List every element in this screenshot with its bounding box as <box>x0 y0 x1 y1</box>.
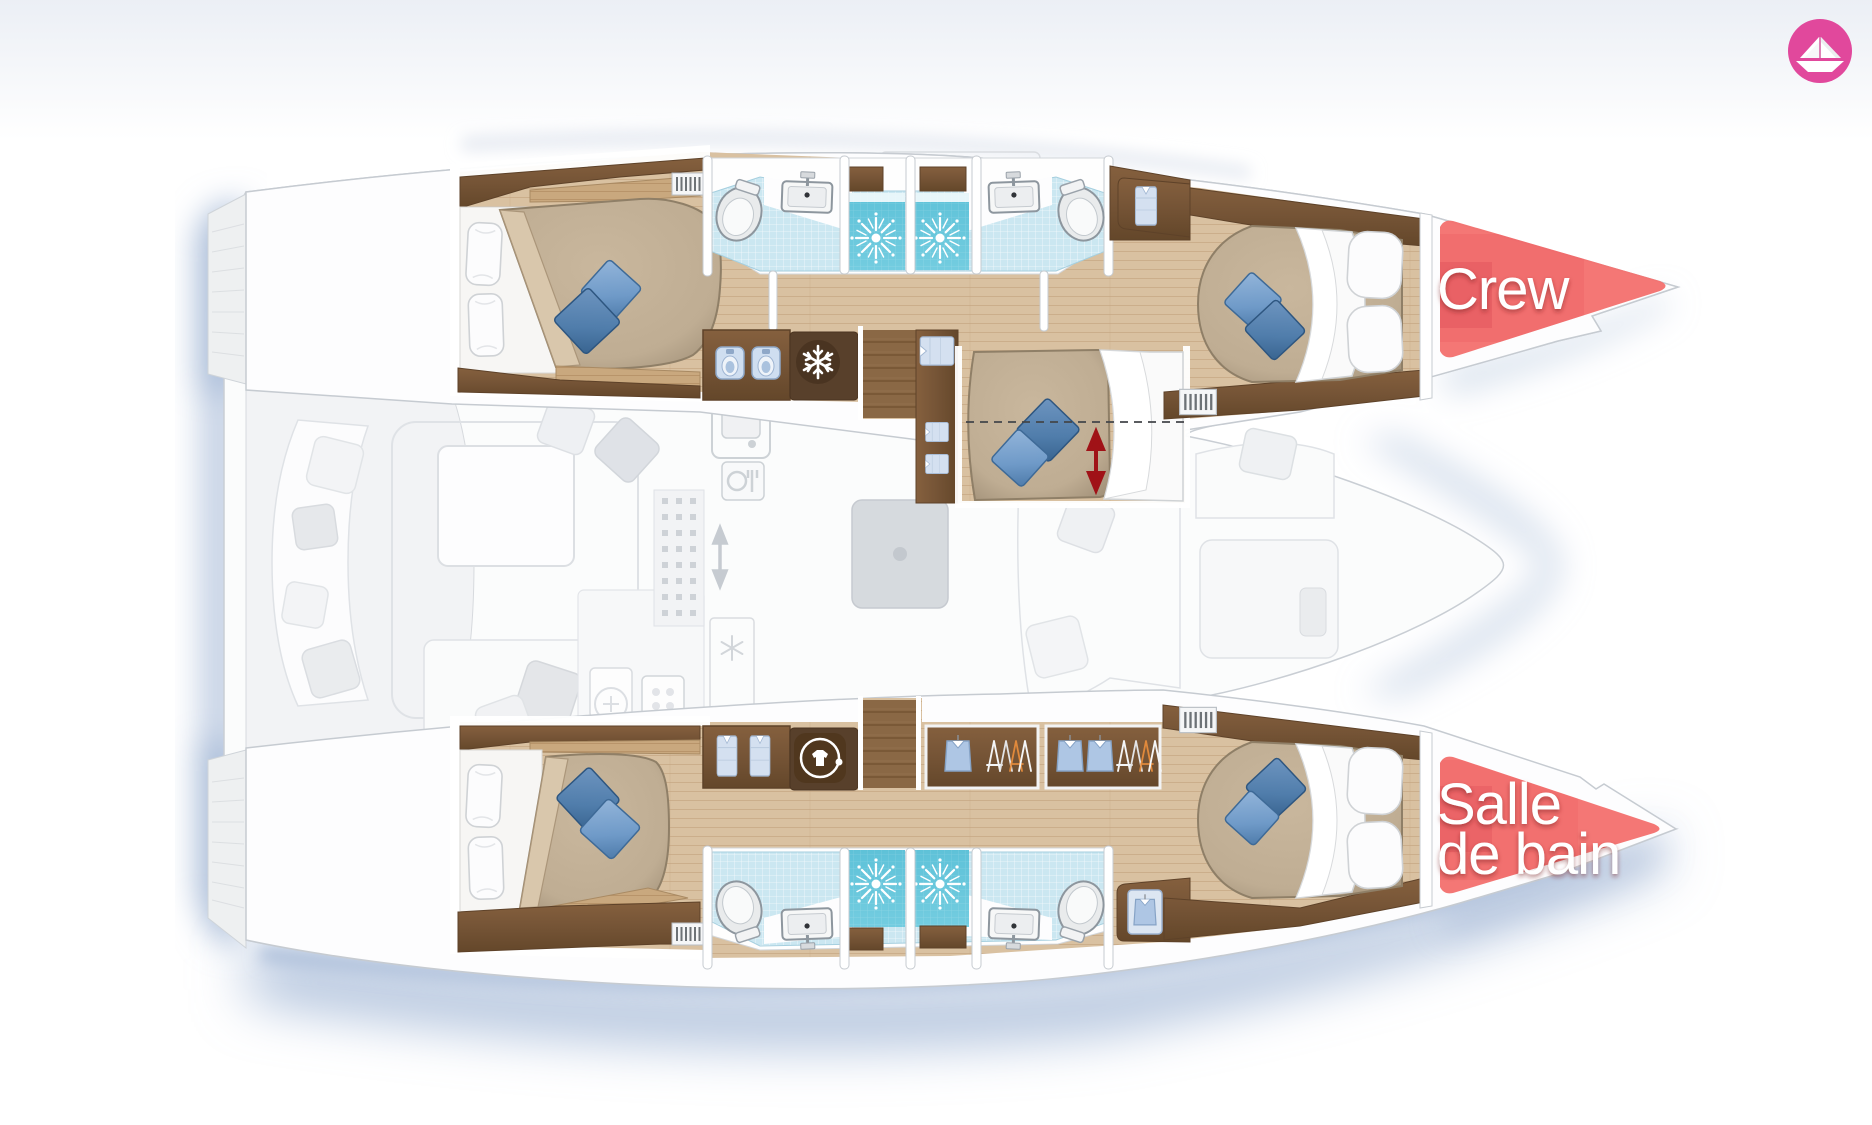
svg-text:Crew: Crew <box>1437 257 1570 322</box>
svg-text:de bain: de bain <box>1437 822 1620 887</box>
